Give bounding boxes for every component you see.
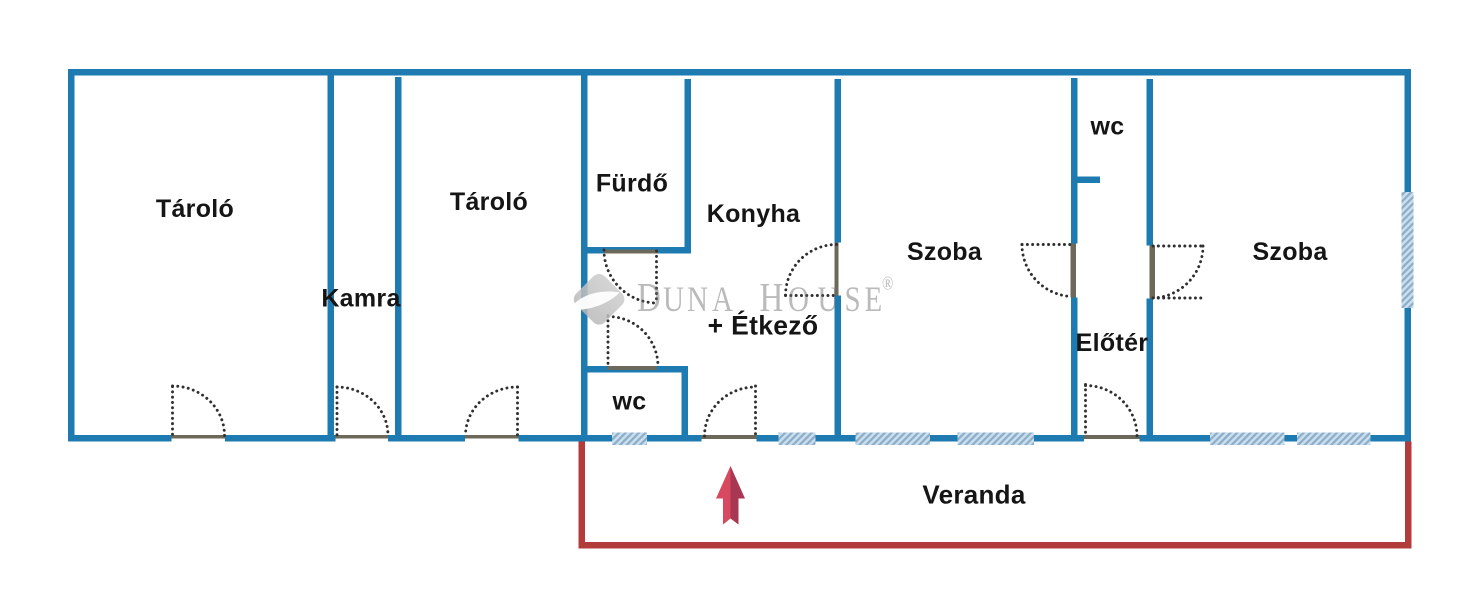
- svg-text:Előtér: Előtér: [1076, 329, 1149, 357]
- svg-text:Kamra: Kamra: [321, 285, 401, 313]
- svg-text:Veranda: Veranda: [922, 480, 1026, 510]
- svg-text:N: N: [687, 280, 708, 320]
- svg-text:Szoba: Szoba: [1252, 238, 1328, 266]
- svg-text:U: U: [818, 280, 839, 320]
- svg-text:®: ®: [882, 273, 894, 294]
- svg-text:Konyha: Konyha: [707, 200, 801, 228]
- svg-text:+ Étkező: + Étkező: [708, 311, 819, 341]
- svg-text:Tároló: Tároló: [450, 188, 528, 216]
- svg-text:U: U: [663, 280, 684, 320]
- svg-text:S: S: [845, 280, 861, 320]
- svg-text:Szoba: Szoba: [907, 238, 983, 266]
- svg-text:Tároló: Tároló: [156, 195, 234, 223]
- svg-text:D: D: [637, 276, 661, 321]
- svg-text:Fürdő: Fürdő: [596, 170, 668, 198]
- svg-text:wc: wc: [1090, 113, 1125, 141]
- svg-text:E: E: [865, 280, 883, 320]
- svg-text:wc: wc: [612, 388, 647, 416]
